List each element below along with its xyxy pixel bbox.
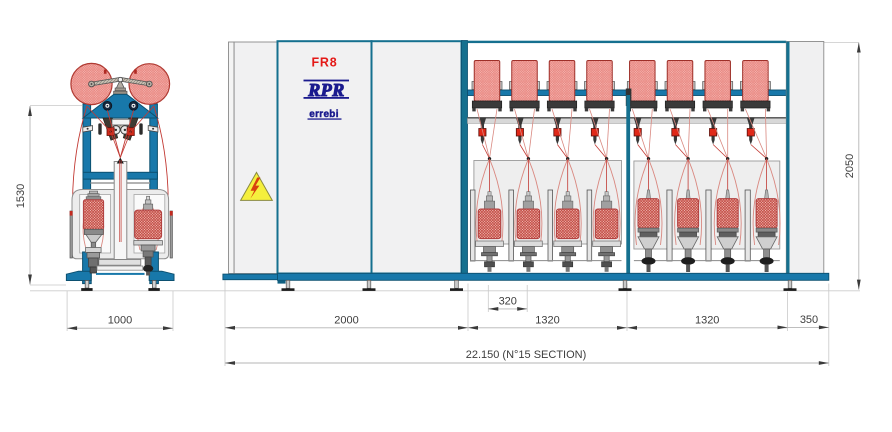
svg-text:350: 350 (800, 314, 818, 326)
svg-text:1320: 1320 (535, 314, 559, 326)
svg-text:1530: 1530 (15, 184, 27, 208)
svg-text:RPR: RPR (307, 80, 345, 100)
svg-text:errebi: errebi (309, 109, 339, 120)
svg-text:1320: 1320 (695, 314, 719, 326)
svg-text:FR8: FR8 (311, 55, 337, 69)
svg-text:320: 320 (499, 295, 517, 307)
svg-text:1000: 1000 (108, 315, 132, 327)
svg-text:22.150 (N°15 SECTION): 22.150 (N°15 SECTION) (466, 349, 587, 361)
svg-text:2000: 2000 (334, 314, 358, 326)
svg-text:2050: 2050 (844, 154, 856, 178)
